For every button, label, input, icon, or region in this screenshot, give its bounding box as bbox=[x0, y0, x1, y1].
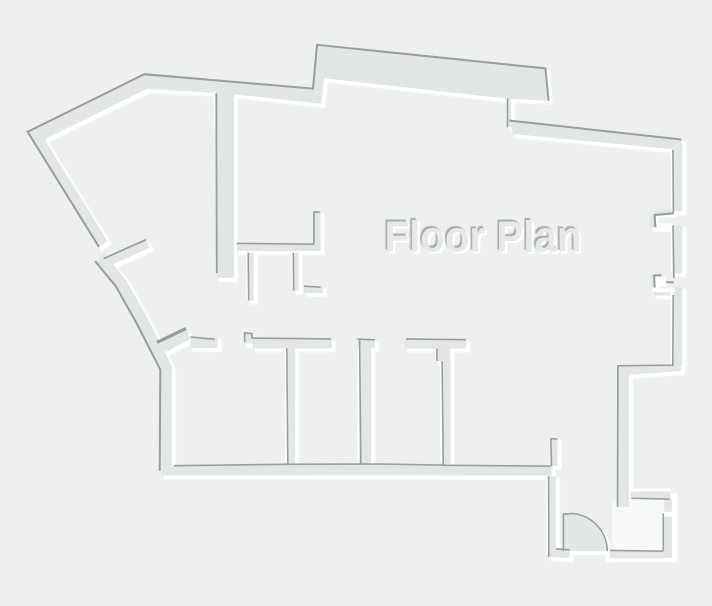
svg-text:Floor Plan: Floor Plan bbox=[385, 213, 582, 261]
